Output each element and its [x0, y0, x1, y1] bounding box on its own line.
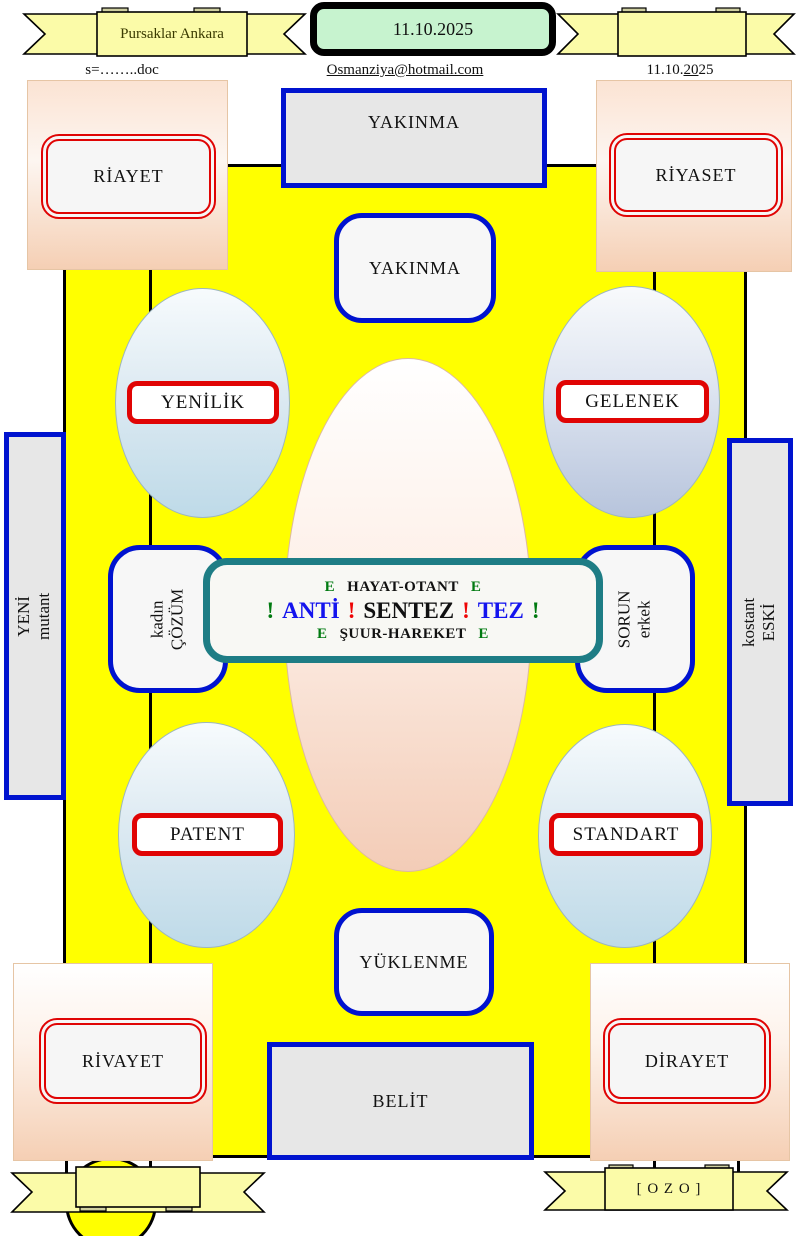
corner-bottom-right: DİRAYET [590, 963, 790, 1161]
email-label: Osmanziya@hotmail.com [280, 62, 530, 79]
yakinma-outer-box: YAKINMA [281, 88, 547, 188]
ellipse-yenilik: YENİLİK [115, 288, 290, 518]
yakinma-inner-box: YAKINMA [334, 213, 496, 323]
corner-top-left: RİAYET [27, 80, 228, 270]
ozo-label: [ O Z O ] [605, 1168, 733, 1210]
yeni-mutant-text: YENİ mutant [15, 592, 56, 639]
belit-label: BELİT [373, 1091, 429, 1112]
rivayet-box: RİVAYET [39, 1018, 207, 1104]
ellipse-standart: STANDART [538, 724, 712, 948]
patent-label-box: PATENT [132, 813, 283, 856]
document-page: Pursaklar Ankara 11.10.2025 s=……..doc Os… [0, 0, 797, 1236]
dirayet-box: DİRAYET [603, 1018, 771, 1104]
rivayet-label: RİVAYET [82, 1051, 164, 1072]
kostant-eski-text: kostant ESKİ [740, 597, 781, 646]
yuklenme-box: YÜKLENME [334, 908, 494, 1016]
ellipse-gelenek: GELENEK [543, 286, 720, 518]
belit-box: BELİT [267, 1042, 534, 1160]
yuklenme-label: YÜKLENME [360, 952, 469, 973]
doc-name-label: s=……..doc [32, 62, 212, 79]
yakinma-inner-label: YAKINMA [369, 258, 461, 279]
riyaset-box: RİYASET [609, 133, 783, 217]
center-thesis-box: EHAYAT-OTANTE !ANTİ!SENTEZ!TEZ! EŞUUR-HA… [203, 558, 603, 663]
yakinma-outer-label: YAKINMA [286, 93, 542, 151]
thesis-line-3: EŞUUR-HAREKETE [305, 626, 501, 643]
side-box-kostant-eski: kostant ESKİ [727, 438, 793, 806]
corner-bottom-left: RİVAYET [13, 963, 213, 1161]
location-label: Pursaklar Ankara [97, 12, 247, 56]
side-box-yeni-mutant: YENİ mutant [4, 432, 66, 800]
ribbon-plate [618, 12, 746, 56]
corner-top-right: RİYASET [596, 80, 792, 272]
patent-label: PATENT [170, 824, 245, 846]
gelenek-label-box: GELENEK [556, 380, 709, 423]
bottom-left-ribbon [10, 1163, 266, 1219]
riayet-label: RİAYET [93, 166, 163, 187]
yenilik-label: YENİLİK [161, 392, 245, 414]
date-badge: 11.10.2025 [310, 2, 556, 56]
bottom-right-ribbon: [ O Z O ] [543, 1163, 789, 1219]
riayet-box: RİAYET [41, 134, 216, 219]
ribbon-plate [76, 1167, 200, 1207]
gelenek-label: GELENEK [585, 391, 680, 413]
date-right-label: 11.10.2025 [610, 62, 750, 79]
top-left-ribbon: Pursaklar Ankara [22, 6, 307, 58]
ellipse-patent: PATENT [118, 722, 295, 948]
riyaset-label: RİYASET [655, 165, 736, 186]
thesis-line-2: !ANTİ!SENTEZ!TEZ! [263, 598, 544, 624]
standart-label: STANDART [573, 824, 680, 846]
top-right-ribbon [556, 6, 796, 58]
sorun-erkek-text: SORUN erkek [615, 590, 656, 648]
yenilik-label-box: YENİLİK [127, 381, 279, 424]
dirayet-label: DİRAYET [645, 1051, 729, 1072]
kadin-cozum-text: kadın ÇÖZÜM [148, 588, 189, 649]
thesis-line-1: EHAYAT-OTANTE [313, 579, 494, 596]
standart-label-box: STANDART [549, 813, 703, 856]
